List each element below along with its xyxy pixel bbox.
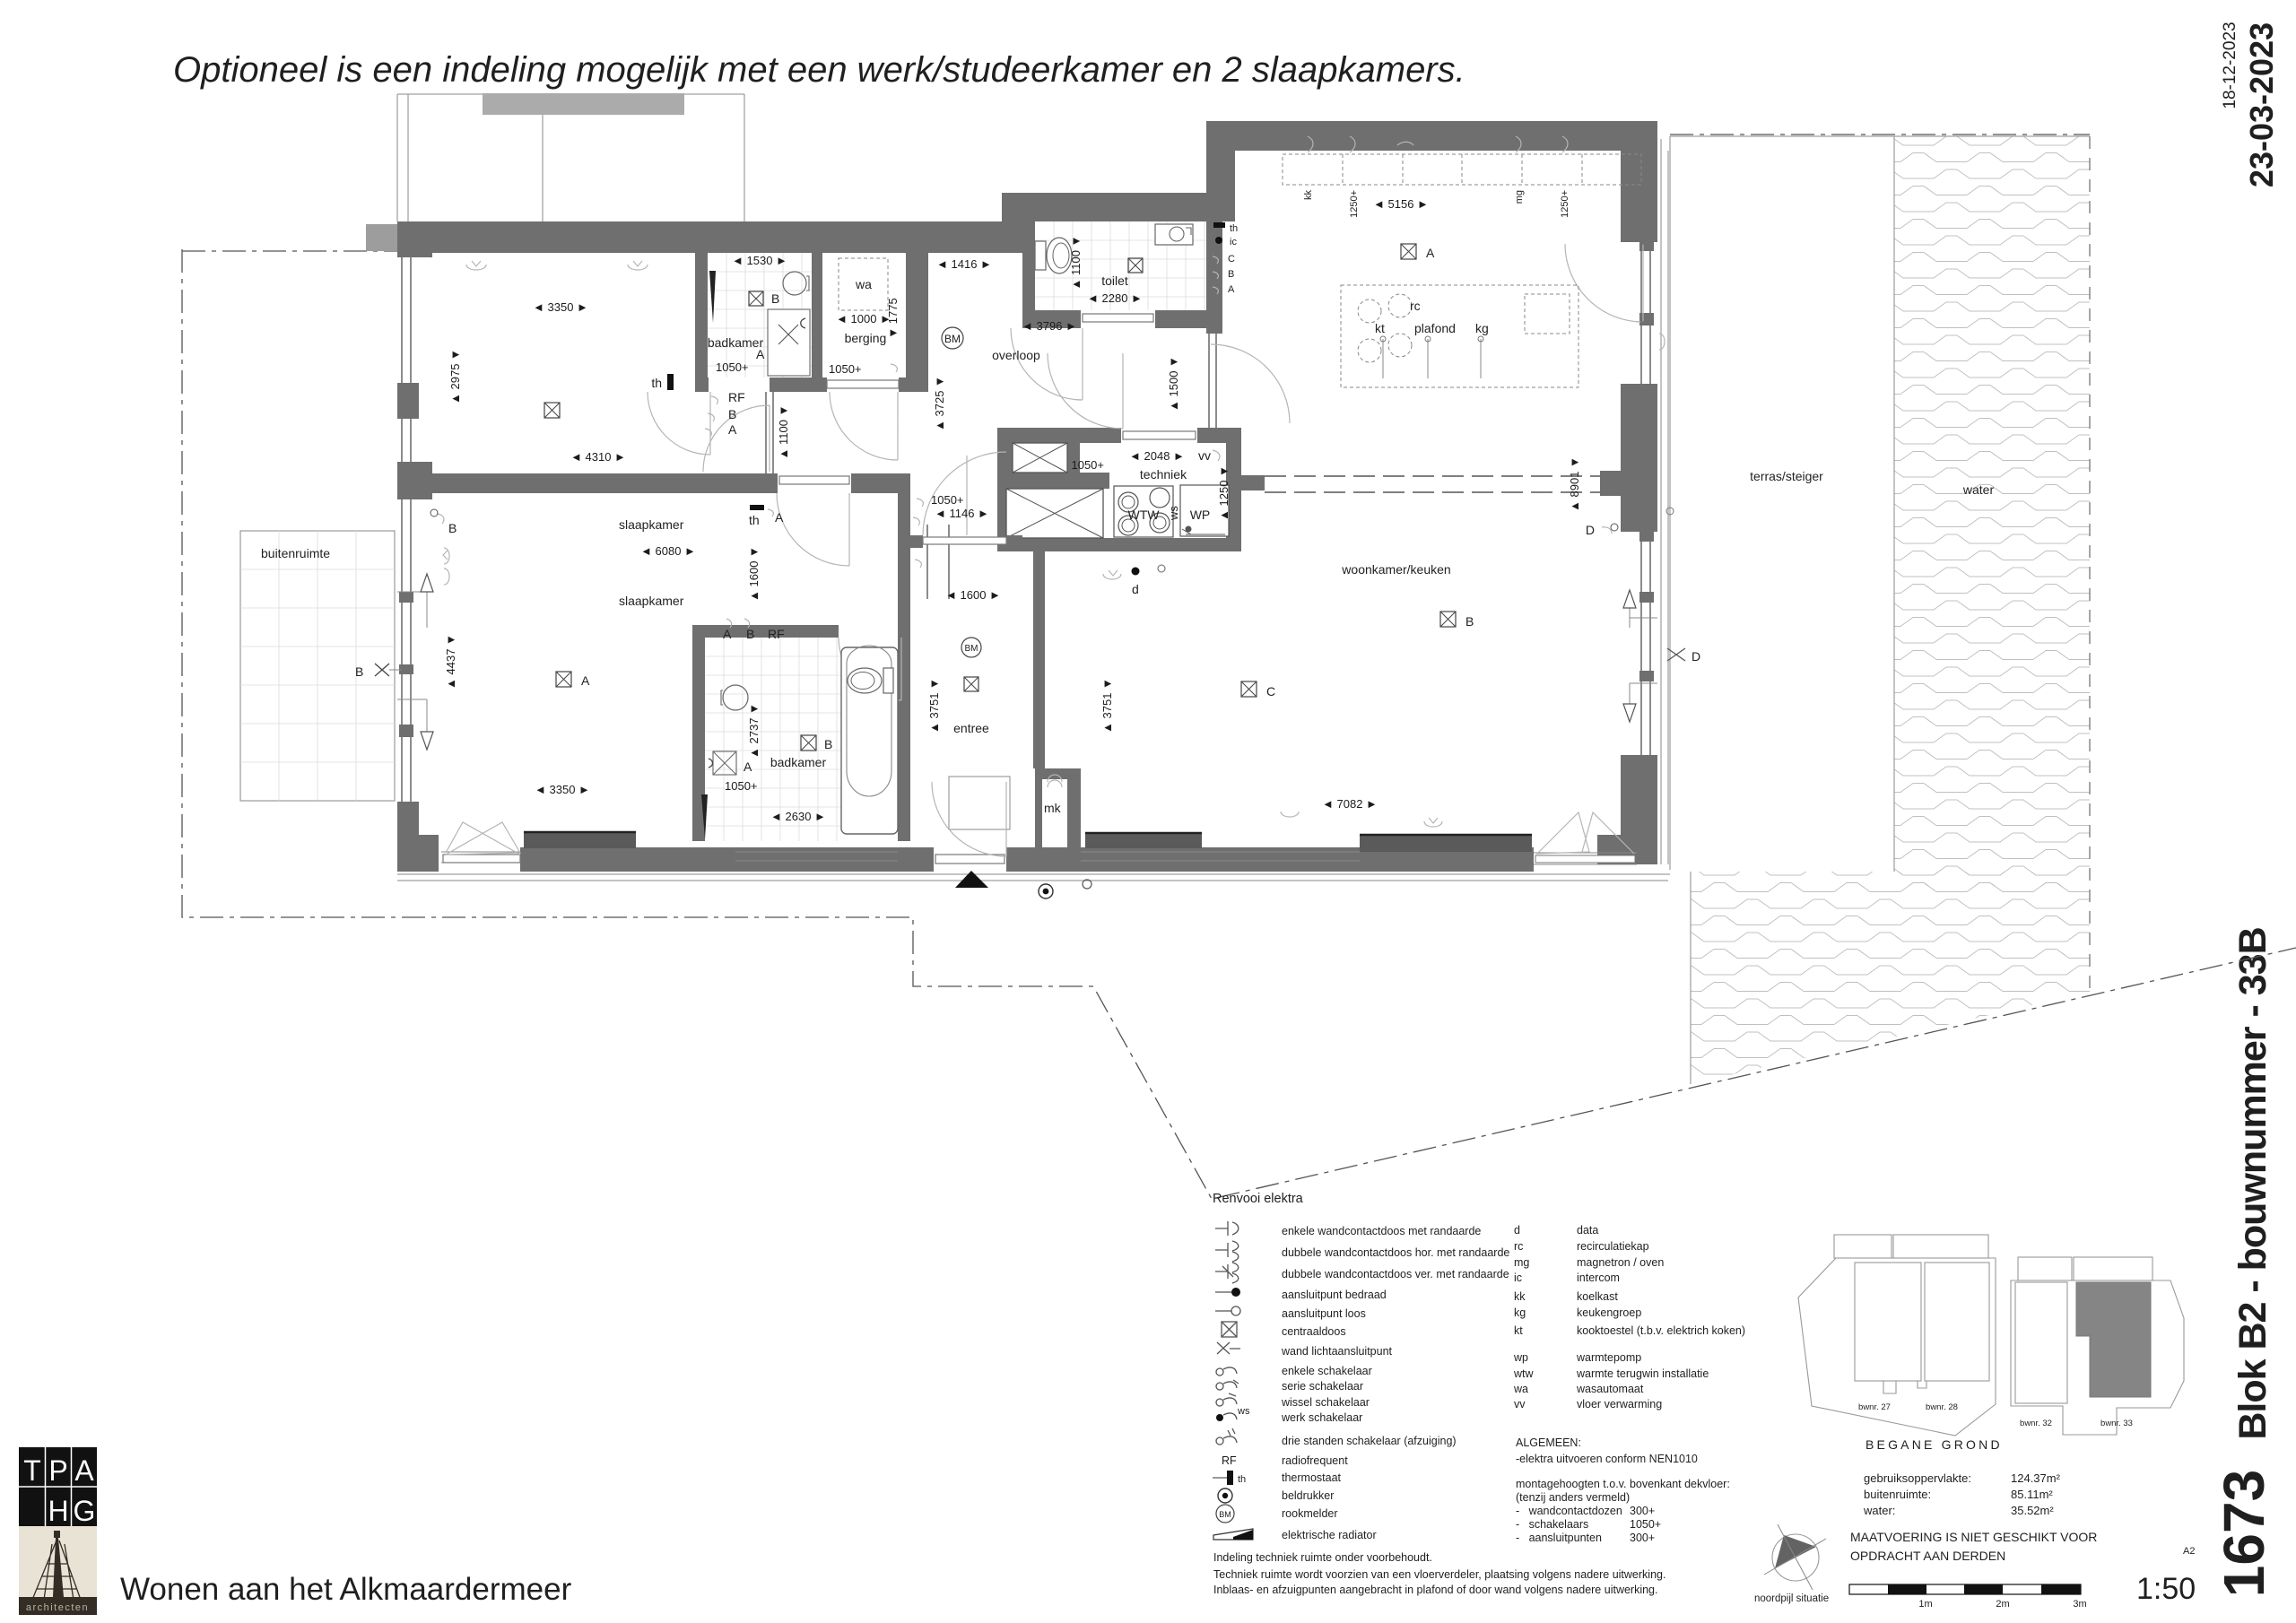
svg-text:ws: ws [1167, 506, 1180, 521]
svg-text:A: A [756, 347, 765, 361]
svg-text:wtw: wtw [1513, 1367, 1535, 1380]
svg-text:kk: kk [1303, 190, 1314, 201]
svg-text:B: B [728, 407, 736, 421]
svg-text:D: D [1692, 649, 1700, 664]
svg-text:Optioneel is een indeling moge: Optioneel is een indeling mogelijk met e… [173, 50, 1465, 90]
svg-text:enkele wandcontactdoos met ran: enkele wandcontactdoos met randaarde [1282, 1225, 1481, 1237]
svg-text:BM: BM [944, 333, 961, 345]
svg-text:Indeling techniek ruimte onder: Indeling techniek ruimte onder voorbehou… [1213, 1551, 1432, 1564]
svg-text:C: C [1228, 254, 1235, 265]
svg-text:C: C [1266, 684, 1275, 699]
svg-text:A: A [581, 673, 590, 688]
svg-text:Inblaas- en afzuigpunten aange: Inblaas- en afzuigpunten aangebracht in … [1213, 1584, 1657, 1596]
svg-text:23-03-2023: 23-03-2023 [2243, 22, 2280, 187]
svg-text:- schakelaars: - schakelaars [1516, 1518, 1588, 1531]
svg-text:WP: WP [1190, 508, 1211, 522]
svg-text:slaapkamer: slaapkamer [619, 517, 684, 532]
svg-text:A: A [1228, 284, 1235, 295]
svg-text:▲ 3725 ▼: ▲ 3725 ▼ [933, 376, 946, 431]
svg-text:1050+: 1050+ [716, 360, 749, 374]
svg-text:rc: rc [1514, 1240, 1523, 1253]
svg-text:B: B [1228, 269, 1234, 280]
svg-text:montagehoogten t.o.v. bovenkan: montagehoogten t.o.v. bovenkant dekvloer… [1516, 1478, 1730, 1490]
svg-text:◄ 6080 ►: ◄ 6080 ► [640, 544, 696, 558]
svg-text:(tenzij anders vermeld): (tenzij anders vermeld) [1516, 1491, 1630, 1504]
svg-text:buitenruimte:: buitenruimte: [1864, 1488, 1931, 1501]
svg-text:1:50: 1:50 [2136, 1572, 2196, 1606]
svg-text:bwnr. 33: bwnr. 33 [2100, 1419, 2133, 1428]
svg-text:radiofrequent: radiofrequent [1282, 1454, 1348, 1467]
svg-text:keukengroep: keukengroep [1577, 1306, 1641, 1319]
svg-text:B: B [746, 627, 754, 641]
svg-text:RF: RF [728, 390, 745, 404]
svg-text:◄ 2280 ►: ◄ 2280 ► [1087, 291, 1143, 305]
svg-text:▲ 2737 ▼: ▲ 2737 ▼ [747, 703, 761, 759]
svg-text:drie standen schakelaar (afzui: drie standen schakelaar (afzuiging) [1282, 1435, 1457, 1447]
svg-text:◄ 3350 ►: ◄ 3350 ► [533, 300, 588, 314]
svg-text:1050+: 1050+ [1071, 458, 1104, 472]
svg-text:B: B [355, 664, 363, 679]
svg-text:▲ 2975 ▼: ▲ 2975 ▼ [448, 349, 462, 404]
svg-text:rc: rc [1410, 299, 1421, 313]
svg-text:bwnr. 28: bwnr. 28 [1926, 1402, 1958, 1412]
svg-text:▲ 8901 ▼: ▲ 8901 ▼ [1568, 456, 1581, 512]
svg-text:badkamer: badkamer [770, 755, 827, 769]
svg-text:◄ 4310 ►: ◄ 4310 ► [570, 450, 626, 464]
svg-text:▲ 4437 ▼: ▲ 4437 ▼ [444, 634, 457, 690]
svg-text:enkele schakelaar: enkele schakelaar [1282, 1365, 1372, 1377]
svg-text:d: d [1514, 1224, 1520, 1237]
svg-text:wissel schakelaar: wissel schakelaar [1281, 1396, 1370, 1409]
svg-text:woonkamer/keuken: woonkamer/keuken [1341, 562, 1450, 577]
svg-text:buitenruimte: buitenruimte [261, 546, 330, 560]
svg-text:centraaldoos: centraaldoos [1282, 1325, 1346, 1338]
svg-text:toilet: toilet [1101, 273, 1128, 288]
svg-text:werk schakelaar: werk schakelaar [1281, 1411, 1362, 1424]
svg-text:B: B [824, 737, 832, 751]
svg-text:Wonen aan het Alkmaardermeer: Wonen aan het Alkmaardermeer [120, 1572, 572, 1607]
svg-text:◄ 1530 ►: ◄ 1530 ► [732, 254, 787, 267]
svg-text:ic: ic [1514, 1271, 1522, 1284]
svg-text:1050+: 1050+ [829, 362, 862, 376]
svg-text:kt: kt [1514, 1324, 1523, 1337]
svg-text:▲ 1250 ▼: ▲ 1250 ▼ [1217, 465, 1231, 521]
svg-text:A: A [723, 627, 732, 641]
svg-text:BM: BM [1219, 1510, 1231, 1519]
svg-text:H: H [48, 1495, 68, 1527]
svg-text:2m: 2m [1996, 1599, 2009, 1610]
svg-text:◄ 2630 ►: ◄ 2630 ► [770, 810, 826, 823]
svg-text:terras/steiger: terras/steiger [1750, 469, 1823, 483]
svg-text:85.11m²: 85.11m² [2011, 1488, 2053, 1501]
svg-text:▲ 3751 ▼: ▲ 3751 ▼ [927, 678, 941, 733]
svg-text:18-12-2023: 18-12-2023 [2221, 22, 2239, 108]
svg-text:1m: 1m [1918, 1599, 1932, 1610]
svg-text:warmtepomp: warmtepomp [1576, 1351, 1641, 1364]
svg-text:dubbele wandcontactdoos hor. m: dubbele wandcontactdoos hor. met randaar… [1282, 1246, 1509, 1259]
svg-text:ic: ic [1230, 237, 1237, 247]
svg-text:A: A [1426, 246, 1435, 260]
svg-text:▲ 1600 ▼: ▲ 1600 ▼ [747, 546, 761, 602]
svg-text:WTW: WTW [1128, 508, 1161, 522]
svg-text:intercom: intercom [1577, 1271, 1620, 1284]
svg-text:elektrische radiator: elektrische radiator [1282, 1529, 1377, 1541]
svg-text:B: B [448, 521, 457, 535]
svg-text:B: B [1465, 614, 1474, 629]
svg-text:A: A [74, 1454, 94, 1487]
svg-text:300+: 300+ [1630, 1532, 1655, 1544]
svg-text:wand lichtaansluitpunt: wand lichtaansluitpunt [1281, 1345, 1393, 1358]
svg-text:1250+: 1250+ [1560, 190, 1570, 218]
svg-text:300+: 300+ [1630, 1505, 1655, 1517]
svg-text:kk: kk [1514, 1290, 1526, 1303]
svg-text:vv: vv [1198, 448, 1211, 463]
svg-text:th: th [749, 513, 760, 527]
svg-text:A2: A2 [2183, 1546, 2195, 1557]
svg-text:A: A [744, 759, 752, 774]
svg-text:◄ 1000 ►: ◄ 1000 ► [836, 312, 891, 325]
svg-text:Renvooi elektra: Renvooi elektra [1213, 1192, 1304, 1206]
svg-text:◄ 1416 ►: ◄ 1416 ► [936, 257, 992, 271]
svg-text:overloop: overloop [992, 348, 1040, 362]
svg-text:G: G [74, 1495, 96, 1527]
svg-text:1050+: 1050+ [931, 493, 964, 507]
svg-text:koelkast: koelkast [1577, 1290, 1618, 1303]
svg-text:thermostaat: thermostaat [1282, 1471, 1342, 1484]
svg-text:wa: wa [855, 277, 872, 291]
svg-text:◄ 3796 ►: ◄ 3796 ► [1022, 319, 1077, 333]
svg-text:D: D [1586, 523, 1595, 537]
svg-text:th: th [1238, 1474, 1246, 1485]
svg-text:▼ 1775: ▼ 1775 [886, 298, 900, 338]
svg-text:RF: RF [1222, 1454, 1237, 1467]
svg-text:water:: water: [1863, 1504, 1895, 1517]
svg-text:beldrukker: beldrukker [1282, 1489, 1334, 1502]
svg-text:- wandcontactdozen: - wandcontactdozen [1516, 1505, 1622, 1517]
svg-text:3m: 3m [2073, 1599, 2086, 1610]
svg-text:vv: vv [1514, 1398, 1526, 1410]
svg-text:wp: wp [1513, 1351, 1528, 1364]
svg-text:1050+: 1050+ [1630, 1518, 1661, 1531]
svg-text:dubbele wandcontactdoos ver. m: dubbele wandcontactdoos ver. met randaar… [1282, 1268, 1509, 1280]
svg-text:aansluitpunt loos: aansluitpunt loos [1282, 1307, 1366, 1320]
svg-text:Blok B2 - bouwnummer - 33B: Blok B2 - bouwnummer - 33B [2231, 927, 2274, 1439]
svg-text:kt: kt [1375, 321, 1385, 335]
svg-text:◄ 3350 ►: ◄ 3350 ► [535, 783, 590, 796]
svg-text:architecten: architecten [26, 1602, 89, 1613]
svg-text:gebruiksoppervlakte:: gebruiksoppervlakte: [1864, 1471, 1971, 1485]
svg-text:1673: 1673 [2212, 1470, 2276, 1597]
svg-text:data: data [1577, 1224, 1598, 1237]
svg-text:techniek: techniek [1140, 467, 1187, 482]
svg-text:wa: wa [1513, 1383, 1528, 1395]
svg-text:water: water [1962, 482, 1995, 497]
svg-text:BEGANE GROND: BEGANE GROND [1865, 1437, 2003, 1452]
svg-text:▲ 1100 ▼: ▲ 1100 ▼ [777, 405, 790, 460]
svg-text:▲ 3751 ▼: ▲ 3751 ▼ [1100, 678, 1114, 733]
svg-text:B: B [771, 291, 779, 306]
svg-text:▲ 1100 ▼: ▲ 1100 ▼ [1069, 236, 1083, 291]
svg-text:kg: kg [1475, 321, 1489, 335]
svg-text:ALGEMEEN:: ALGEMEEN: [1516, 1436, 1581, 1449]
svg-text:◄ 7082 ►: ◄ 7082 ► [1322, 797, 1378, 811]
svg-text:magnetron / oven: magnetron / oven [1577, 1256, 1664, 1269]
svg-text:berging: berging [845, 331, 887, 345]
svg-text:rookmelder: rookmelder [1282, 1507, 1338, 1520]
svg-text:recirculatiekap: recirculatiekap [1577, 1240, 1649, 1253]
svg-text:entree: entree [953, 721, 989, 735]
svg-text:OPDRACHT AAN DERDEN: OPDRACHT AAN DERDEN [1850, 1549, 2005, 1563]
svg-text:kooktoestel (t.b.v. elektrich: kooktoestel (t.b.v. elektrich koken) [1577, 1324, 1745, 1337]
svg-text:mg: mg [1514, 1256, 1529, 1269]
svg-text:noordpijl situatie: noordpijl situatie [1754, 1593, 1829, 1604]
svg-text:aansluitpunt bedraad: aansluitpunt bedraad [1282, 1289, 1387, 1301]
svg-text:vloer verwarming: vloer verwarming [1577, 1398, 1662, 1410]
svg-text:ws: ws [1237, 1406, 1250, 1417]
svg-text:124.37m²: 124.37m² [2011, 1471, 2061, 1485]
svg-text:bwnr. 32: bwnr. 32 [2020, 1419, 2052, 1428]
svg-text:RF: RF [768, 627, 785, 641]
svg-text:▲ 1500 ▼: ▲ 1500 ▼ [1167, 356, 1180, 412]
svg-text:BM: BM [965, 644, 978, 654]
svg-text:A: A [728, 422, 737, 437]
svg-text:bwnr. 27: bwnr. 27 [1858, 1402, 1891, 1412]
svg-text:35.52m²: 35.52m² [2011, 1504, 2054, 1517]
svg-text:A: A [775, 510, 784, 525]
svg-text:th: th [651, 376, 662, 390]
svg-text:warmte terugwin installatie: warmte terugwin installatie [1576, 1367, 1709, 1380]
svg-text:mg: mg [1514, 190, 1525, 204]
svg-text:th: th [1230, 223, 1238, 234]
svg-text:T: T [23, 1454, 41, 1487]
svg-text:-elektra uitvoeren conform NEN: -elektra uitvoeren conform NEN1010 [1516, 1453, 1698, 1465]
svg-text:MAATVOERING IS NIET GESCHIKT V: MAATVOERING IS NIET GESCHIKT VOOR [1850, 1530, 2097, 1544]
svg-text:kg: kg [1514, 1306, 1526, 1319]
svg-text:mk: mk [1044, 801, 1062, 815]
svg-text:◄ 1146 ►: ◄ 1146 ► [935, 507, 989, 520]
svg-text:◄ 2048 ►: ◄ 2048 ► [1129, 449, 1185, 463]
svg-text:- aansluitpunten: - aansluitpunten [1516, 1532, 1602, 1544]
svg-text:P: P [48, 1454, 67, 1487]
svg-text:1050+: 1050+ [725, 779, 758, 793]
svg-text:d: d [1132, 582, 1139, 596]
svg-text:◄ 5156 ►: ◄ 5156 ► [1373, 197, 1429, 211]
svg-text:serie schakelaar: serie schakelaar [1282, 1380, 1363, 1393]
svg-text:wasautomaat: wasautomaat [1576, 1383, 1644, 1395]
svg-text:◄ 1600 ►: ◄ 1600 ► [945, 588, 1001, 602]
svg-text:Techniek ruimte wordt voorzien: Techniek ruimte wordt voorzien van een v… [1213, 1568, 1665, 1581]
svg-text:plafond: plafond [1414, 321, 1456, 335]
svg-text:1250+: 1250+ [1349, 190, 1360, 218]
svg-text:slaapkamer: slaapkamer [619, 594, 684, 608]
